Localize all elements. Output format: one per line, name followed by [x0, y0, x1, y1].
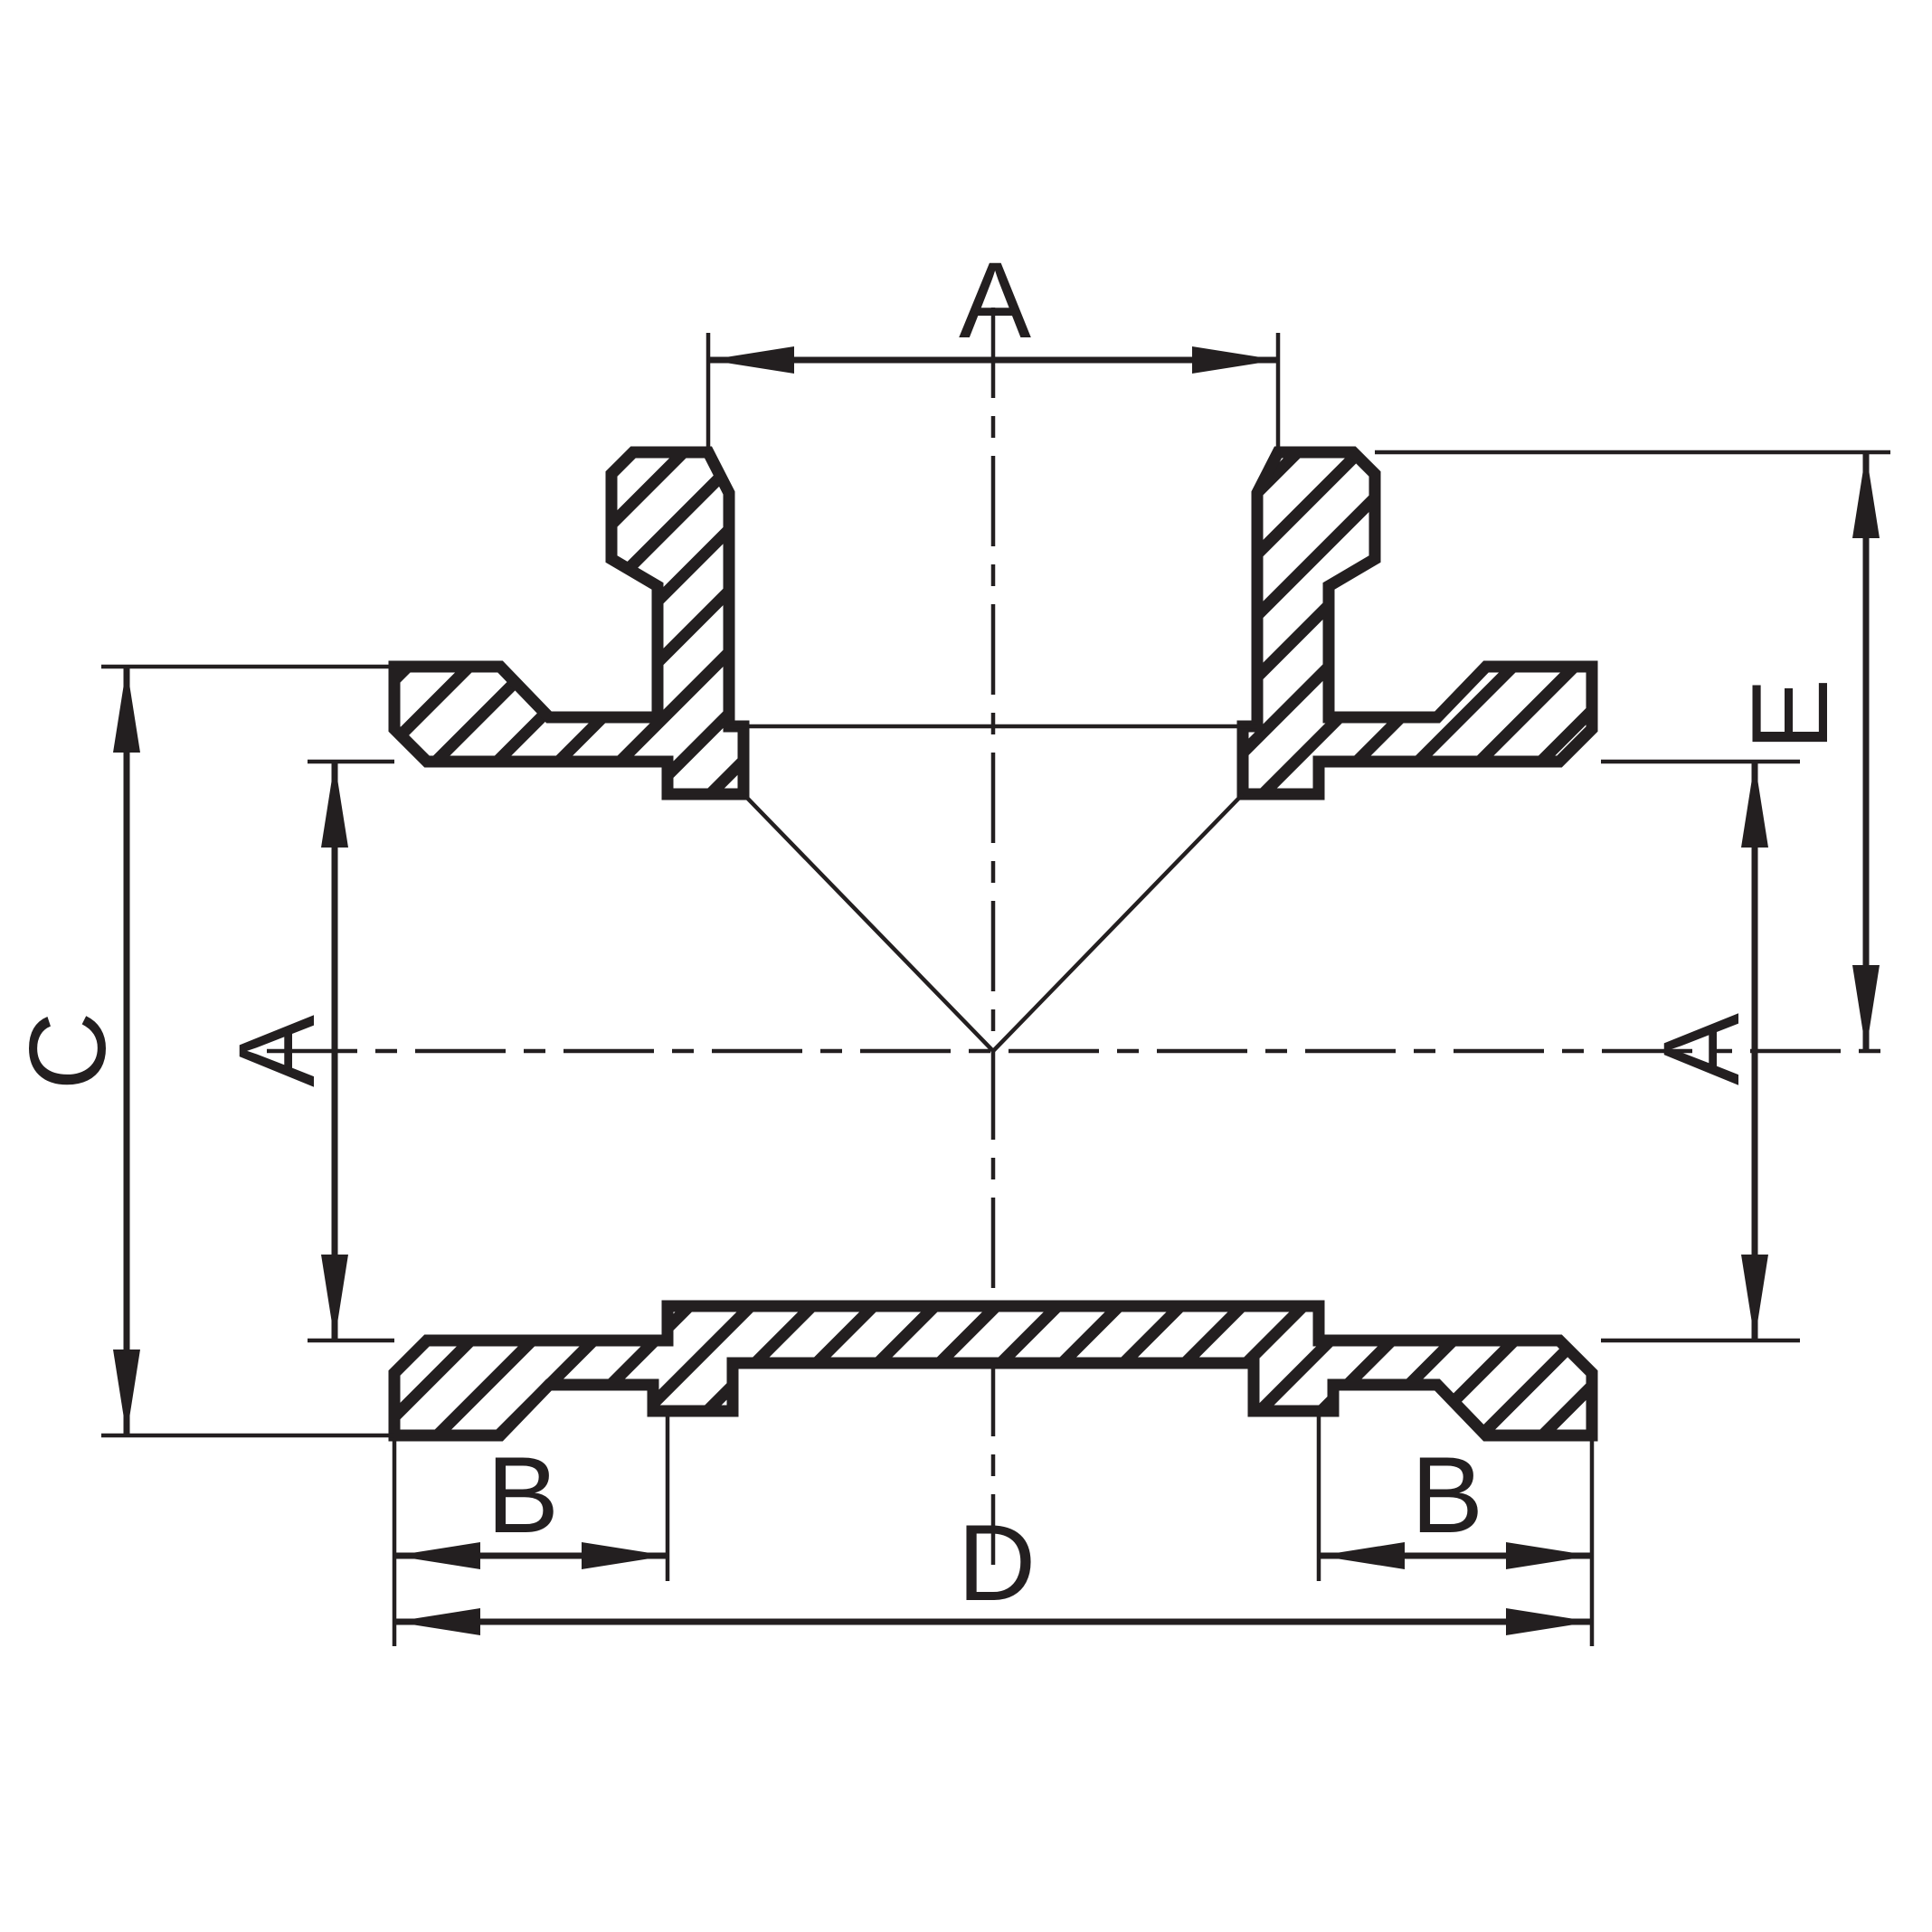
dimension-label-a-left: A: [216, 1015, 337, 1087]
dimension-label-d-bottom: D: [958, 1502, 1037, 1624]
technical-drawing-page: ACAEABBD: [0, 0, 1932, 1932]
dimension-label-b-right: B: [1411, 1435, 1483, 1556]
dimension-label-c-left: C: [7, 1012, 128, 1091]
dimension-label-e-right: E: [1729, 678, 1851, 751]
tee-fitting-drawing: ACAEABBD: [0, 0, 1932, 1932]
dimension-label-a-top: A: [959, 240, 1031, 361]
dimension-label-a-right: A: [1641, 1013, 1762, 1085]
dimension-label-b-left: B: [487, 1435, 559, 1556]
